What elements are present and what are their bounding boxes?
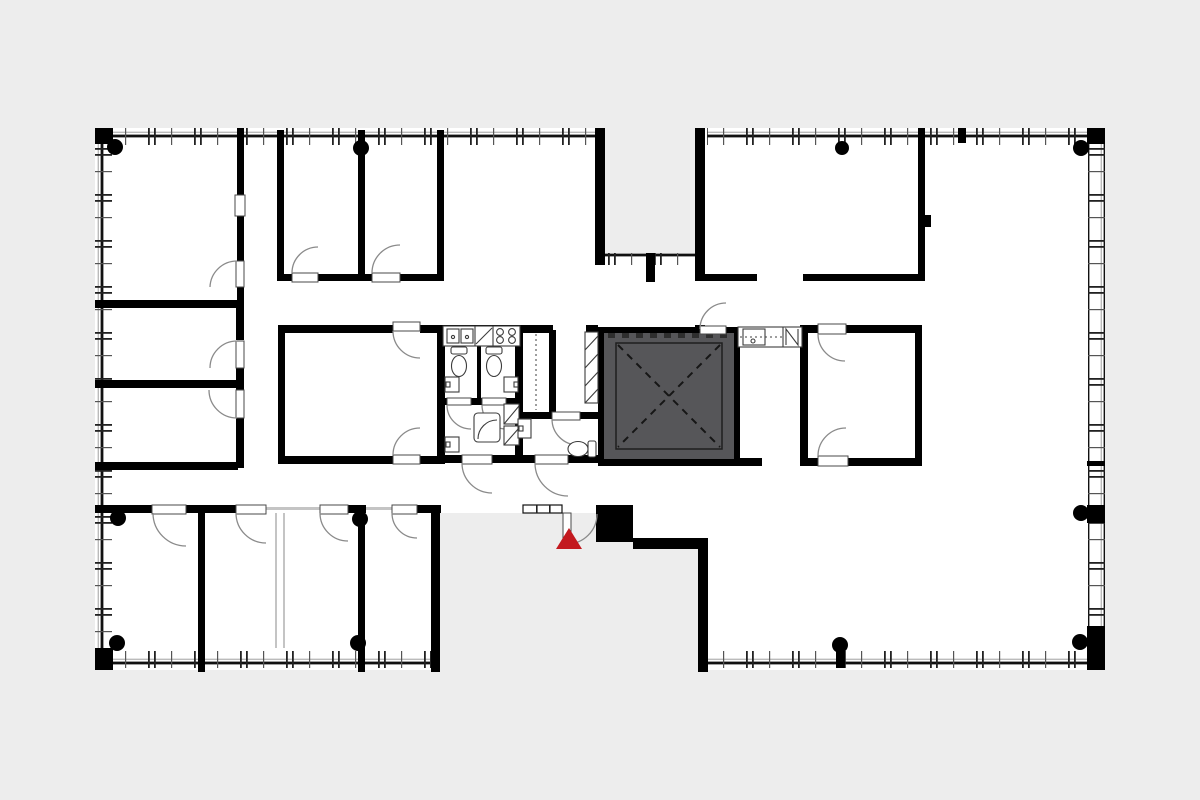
wall-v4: [437, 130, 444, 281]
sink-icon: [447, 329, 459, 343]
elevator-door-leaf: [700, 326, 726, 334]
toilet-icon: [568, 441, 596, 457]
washer-icon: [474, 413, 500, 442]
entry-window: [523, 505, 562, 513]
window-band-top-left: [113, 128, 595, 145]
wall-v2: [277, 130, 284, 281]
facade-stub-top: [958, 128, 966, 143]
stair-elevator-core: [598, 327, 740, 465]
entrance-step-bar: [633, 538, 708, 549]
entrance-step-block: [596, 505, 633, 542]
wall-notch-right: [695, 128, 705, 281]
window-band-bottom-left: [113, 651, 436, 668]
facade-stub-right-2: [1087, 505, 1105, 523]
window-band-left: [95, 144, 112, 651]
pier-bottom-left: [95, 648, 113, 670]
wash-basin-icon: [445, 437, 459, 452]
kitchenette-counter: [738, 327, 802, 347]
window-band-top-right: [707, 128, 1087, 145]
wash-basin-icon: [504, 377, 518, 392]
wash-basin-icon: [445, 377, 459, 392]
window-band-bottom-right: [707, 651, 1087, 668]
notch-center-stub: [646, 253, 655, 282]
pier-top-right: [1087, 128, 1105, 144]
pier-bottom-right: [1087, 626, 1105, 670]
wash-basin-icon: [518, 419, 531, 438]
bottom-right-left-wall: [698, 549, 708, 672]
sink-icon: [461, 329, 473, 343]
kitchen-counter: [443, 326, 520, 346]
facade-stub-right-1: [1087, 461, 1105, 466]
shelf-hatch-strip: [585, 332, 598, 403]
shaft-hatch-icon: [504, 404, 519, 445]
toilet-icon: [486, 347, 502, 377]
corridor-panel: [235, 195, 245, 216]
wall-v7-stub: [925, 215, 931, 227]
toilet-icon: [451, 347, 467, 377]
floor-plan-drawing: [0, 0, 1200, 800]
wall-notch-left: [595, 128, 605, 265]
wall-v7: [918, 128, 925, 281]
window-band-right: [1088, 144, 1105, 626]
floor-plan-canvas: [0, 0, 1200, 800]
top-notch-recess: [605, 128, 695, 255]
